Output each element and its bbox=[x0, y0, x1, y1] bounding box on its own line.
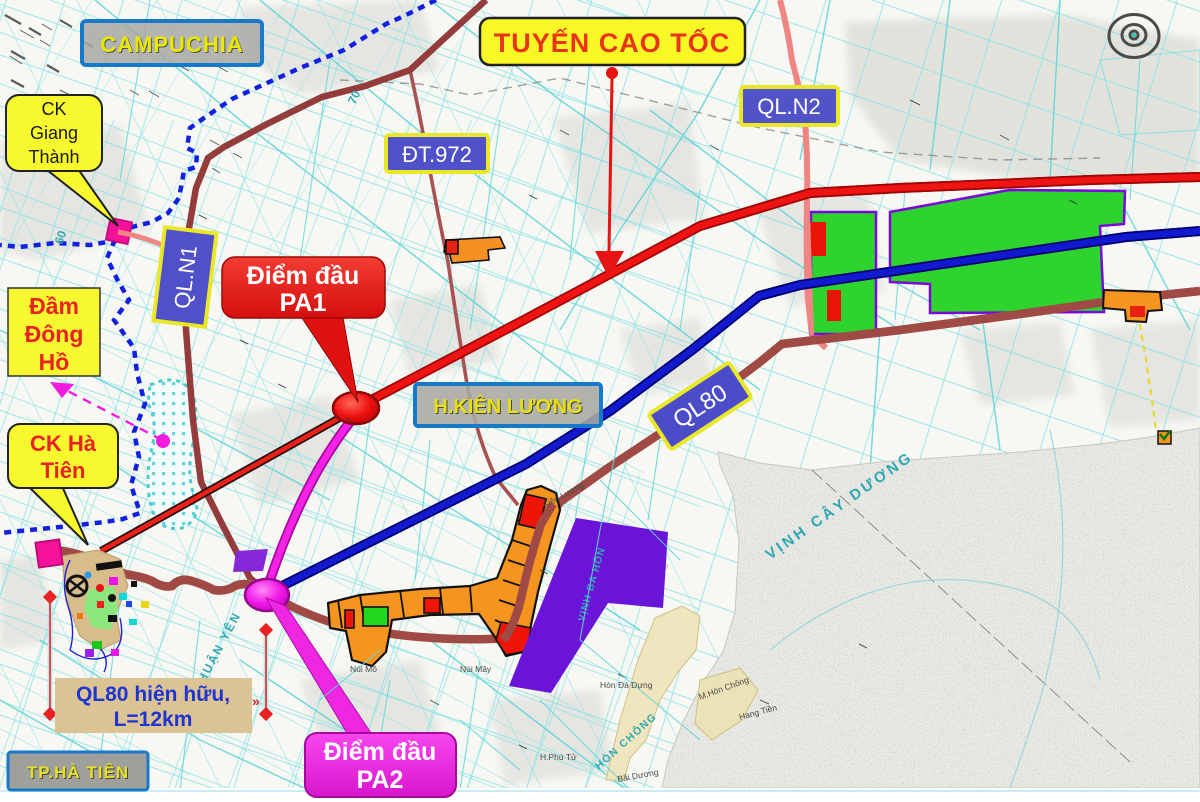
svg-text:ĐT.972: ĐT.972 bbox=[402, 142, 472, 167]
svg-text:Điểm đầu: Điểm đầu bbox=[324, 738, 437, 766]
svg-text:L=12km: L=12km bbox=[114, 708, 193, 731]
svg-text:Đông: Đông bbox=[25, 321, 84, 347]
svg-text:CK Hà: CK Hà bbox=[30, 431, 97, 456]
svg-text:Tiên: Tiên bbox=[41, 458, 86, 483]
svg-text:Núi Mô: Núi Mô bbox=[350, 664, 377, 674]
svg-text:TUYẾN CAO TỐC: TUYẾN CAO TỐC bbox=[494, 26, 731, 58]
svg-text:Điểm đầu: Điểm đầu bbox=[247, 262, 360, 290]
svg-text:TP.HÀ TIÊN: TP.HÀ TIÊN bbox=[27, 763, 129, 782]
svg-text:H.Phú Tử: H.Phú Tử bbox=[540, 752, 577, 762]
svg-text:Giang: Giang bbox=[30, 123, 78, 143]
svg-text:H.KIÊN LƯƠNG: H.KIÊN LƯƠNG bbox=[433, 394, 582, 418]
svg-text:Thành: Thành bbox=[28, 147, 79, 167]
svg-text:CAMPUCHIA: CAMPUCHIA bbox=[100, 32, 243, 57]
svg-text:QL.N2: QL.N2 bbox=[757, 94, 821, 119]
svg-text:»: » bbox=[252, 693, 260, 709]
svg-text:Hồ: Hồ bbox=[39, 349, 70, 375]
svg-text:PA1: PA1 bbox=[280, 289, 327, 317]
svg-text:Đầm: Đầm bbox=[29, 293, 79, 319]
svg-text:QL80 hiện hữu,: QL80 hiện hữu, bbox=[76, 683, 230, 706]
svg-text:CK: CK bbox=[41, 99, 66, 119]
svg-text:Hòn Đá Dựng: Hòn Đá Dựng bbox=[600, 680, 653, 690]
svg-text:Núi Mây: Núi Mây bbox=[460, 664, 492, 674]
svg-text:PA2: PA2 bbox=[357, 766, 404, 794]
